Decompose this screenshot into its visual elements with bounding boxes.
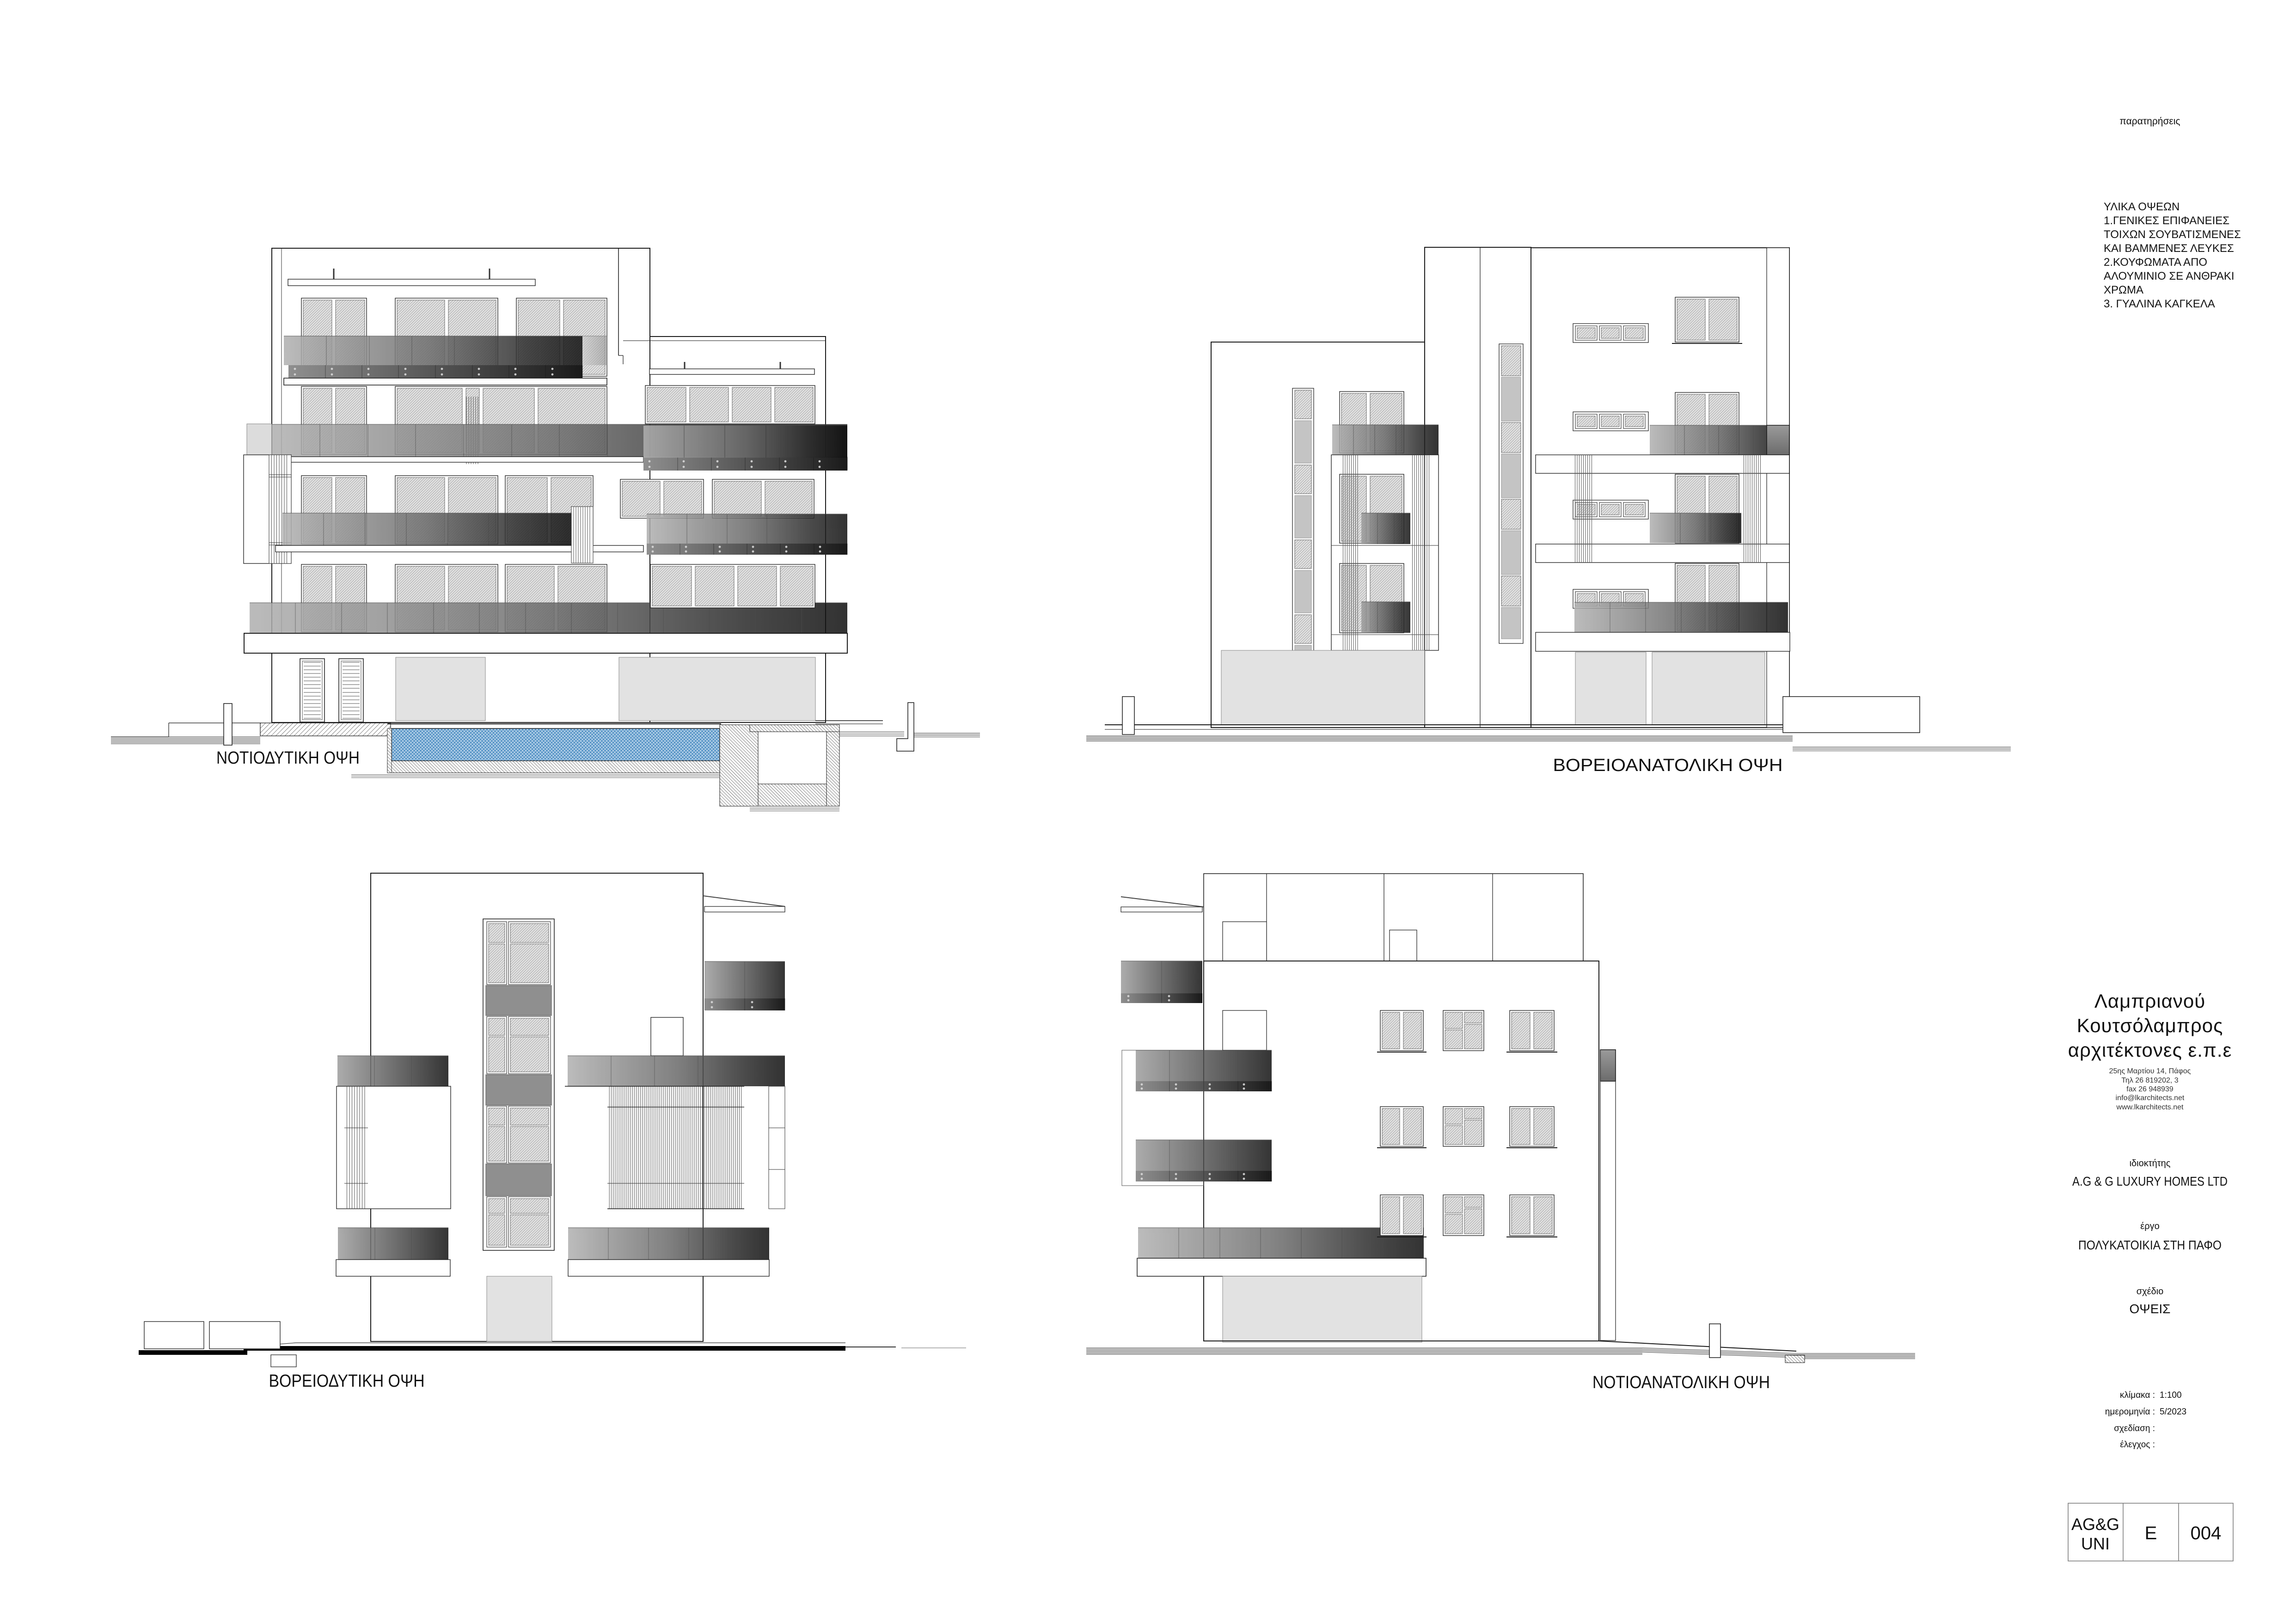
svg-text:2.ΚΟΥΦΩΜΑΤΑ ΑΠΟ: 2.ΚΟΥΦΩΜΑΤΑ ΑΠΟ [2104, 256, 2207, 269]
svg-text:004: 004 [2191, 1523, 2222, 1543]
svg-text:3. ΓΥΑΛΙΝΑ ΚΑΓΚΕΛΑ: 3. ΓΥΑΛΙΝΑ ΚΑΓΚΕΛΑ [2104, 298, 2215, 310]
svg-text:A.G & G LUXURY HOMES LTD: A.G & G LUXURY HOMES LTD [2072, 1174, 2228, 1188]
svg-text:www.lkarchitects.net: www.lkarchitects.net [2116, 1103, 2184, 1111]
svg-text:1.ΓΕΝΙΚΕΣ ΕΠΙΦΑΝΕΙΕΣ: 1.ΓΕΝΙΚΕΣ ΕΠΙΦΑΝΕΙΕΣ [2104, 214, 2229, 227]
svg-text:ΝΟΤΙΟΔΥΤΙΚΗ ΟΨΗ: ΝΟΤΙΟΔΥΤΙΚΗ ΟΨΗ [216, 748, 360, 768]
svg-text:Τηλ 26 819202, 3: Τηλ 26 819202, 3 [2121, 1077, 2178, 1084]
svg-text:E: E [2145, 1523, 2157, 1543]
svg-text:ιδιοκτήτης: ιδιοκτήτης [2130, 1158, 2171, 1169]
svg-text:κλίμακα :: κλίμακα : [2120, 1390, 2155, 1400]
svg-text:ΚΑΙ ΒΑΜΜΕΝΕΣ ΛΕΥΚΕΣ: ΚΑΙ ΒΑΜΜΕΝΕΣ ΛΕΥΚΕΣ [2104, 242, 2234, 255]
svg-text:ΒΟΡΕΙΟΔΥΤΙΚΗ ΟΨΗ: ΒΟΡΕΙΟΔΥΤΙΚΗ ΟΨΗ [269, 1371, 425, 1391]
svg-text:ΠΟΛΥΚΑΤΟΙΚΙΑ ΣΤΗ ΠΑΦΟ: ΠΟΛΥΚΑΤΟΙΚΙΑ ΣΤΗ ΠΑΦΟ [2078, 1238, 2222, 1252]
svg-text:ΒΟΡΕΙΟΑΝΑΤΟΛΙΚΗ ΟΨΗ: ΒΟΡΕΙΟΑΝΑΤΟΛΙΚΗ ΟΨΗ [1553, 756, 1783, 775]
svg-text:αρχιτέκτονες ε.π.ε: αρχιτέκτονες ε.π.ε [2068, 1039, 2232, 1061]
svg-text:σχεδίαση :: σχεδίαση : [2114, 1424, 2155, 1433]
svg-text:ΑΛΟΥΜΙΝΙΟ ΣΕ ΑΝΘΡΑΚΙ: ΑΛΟΥΜΙΝΙΟ ΣΕ ΑΝΘΡΑΚΙ [2104, 270, 2235, 282]
svg-text:ΟΨΕΙΣ: ΟΨΕΙΣ [2130, 1302, 2171, 1316]
svg-text:25ης Μαρτίου 14, Πάφος: 25ης Μαρτίου 14, Πάφος [2109, 1067, 2191, 1075]
svg-text:fax 26 948939: fax 26 948939 [2126, 1085, 2174, 1093]
svg-text:έργο: έργο [2140, 1221, 2159, 1231]
svg-text:παρατηρήσεις: παρατηρήσεις [2119, 116, 2180, 127]
svg-text:ημερομηνία :: ημερομηνία : [2105, 1407, 2155, 1417]
svg-text:έλεγχος :: έλεγχος : [2120, 1440, 2155, 1450]
svg-text:5/2023: 5/2023 [2160, 1407, 2186, 1417]
svg-text:ΧΡΩΜΑ: ΧΡΩΜΑ [2104, 284, 2143, 296]
svg-text:UNI: UNI [2081, 1534, 2110, 1553]
svg-text:σχέδιο: σχέδιο [2137, 1286, 2163, 1297]
svg-text:info@lkarchitects.net: info@lkarchitects.net [2116, 1094, 2185, 1102]
svg-text:Λαμπριανού: Λαμπριανού [2094, 990, 2205, 1012]
svg-text:ΥΛΙΚΑ ΟΨΕΩΝ: ΥΛΙΚΑ ΟΨΕΩΝ [2104, 201, 2180, 213]
svg-text:1:100: 1:100 [2160, 1390, 2182, 1400]
svg-text:ΤΟΙΧΩΝ ΣΟΥΒΑΤΙΣΜΕΝΕΣ: ΤΟΙΧΩΝ ΣΟΥΒΑΤΙΣΜΕΝΕΣ [2104, 228, 2241, 241]
svg-text:ΝΟΤΙΟΑΝΑΤΟΛΙΚΗ ΟΨΗ: ΝΟΤΙΟΑΝΑΤΟΛΙΚΗ ΟΨΗ [1592, 1373, 1770, 1392]
svg-text:AG&G: AG&G [2071, 1515, 2119, 1534]
svg-text:Κουτσόλαμπρος: Κουτσόλαμπρος [2077, 1015, 2223, 1036]
